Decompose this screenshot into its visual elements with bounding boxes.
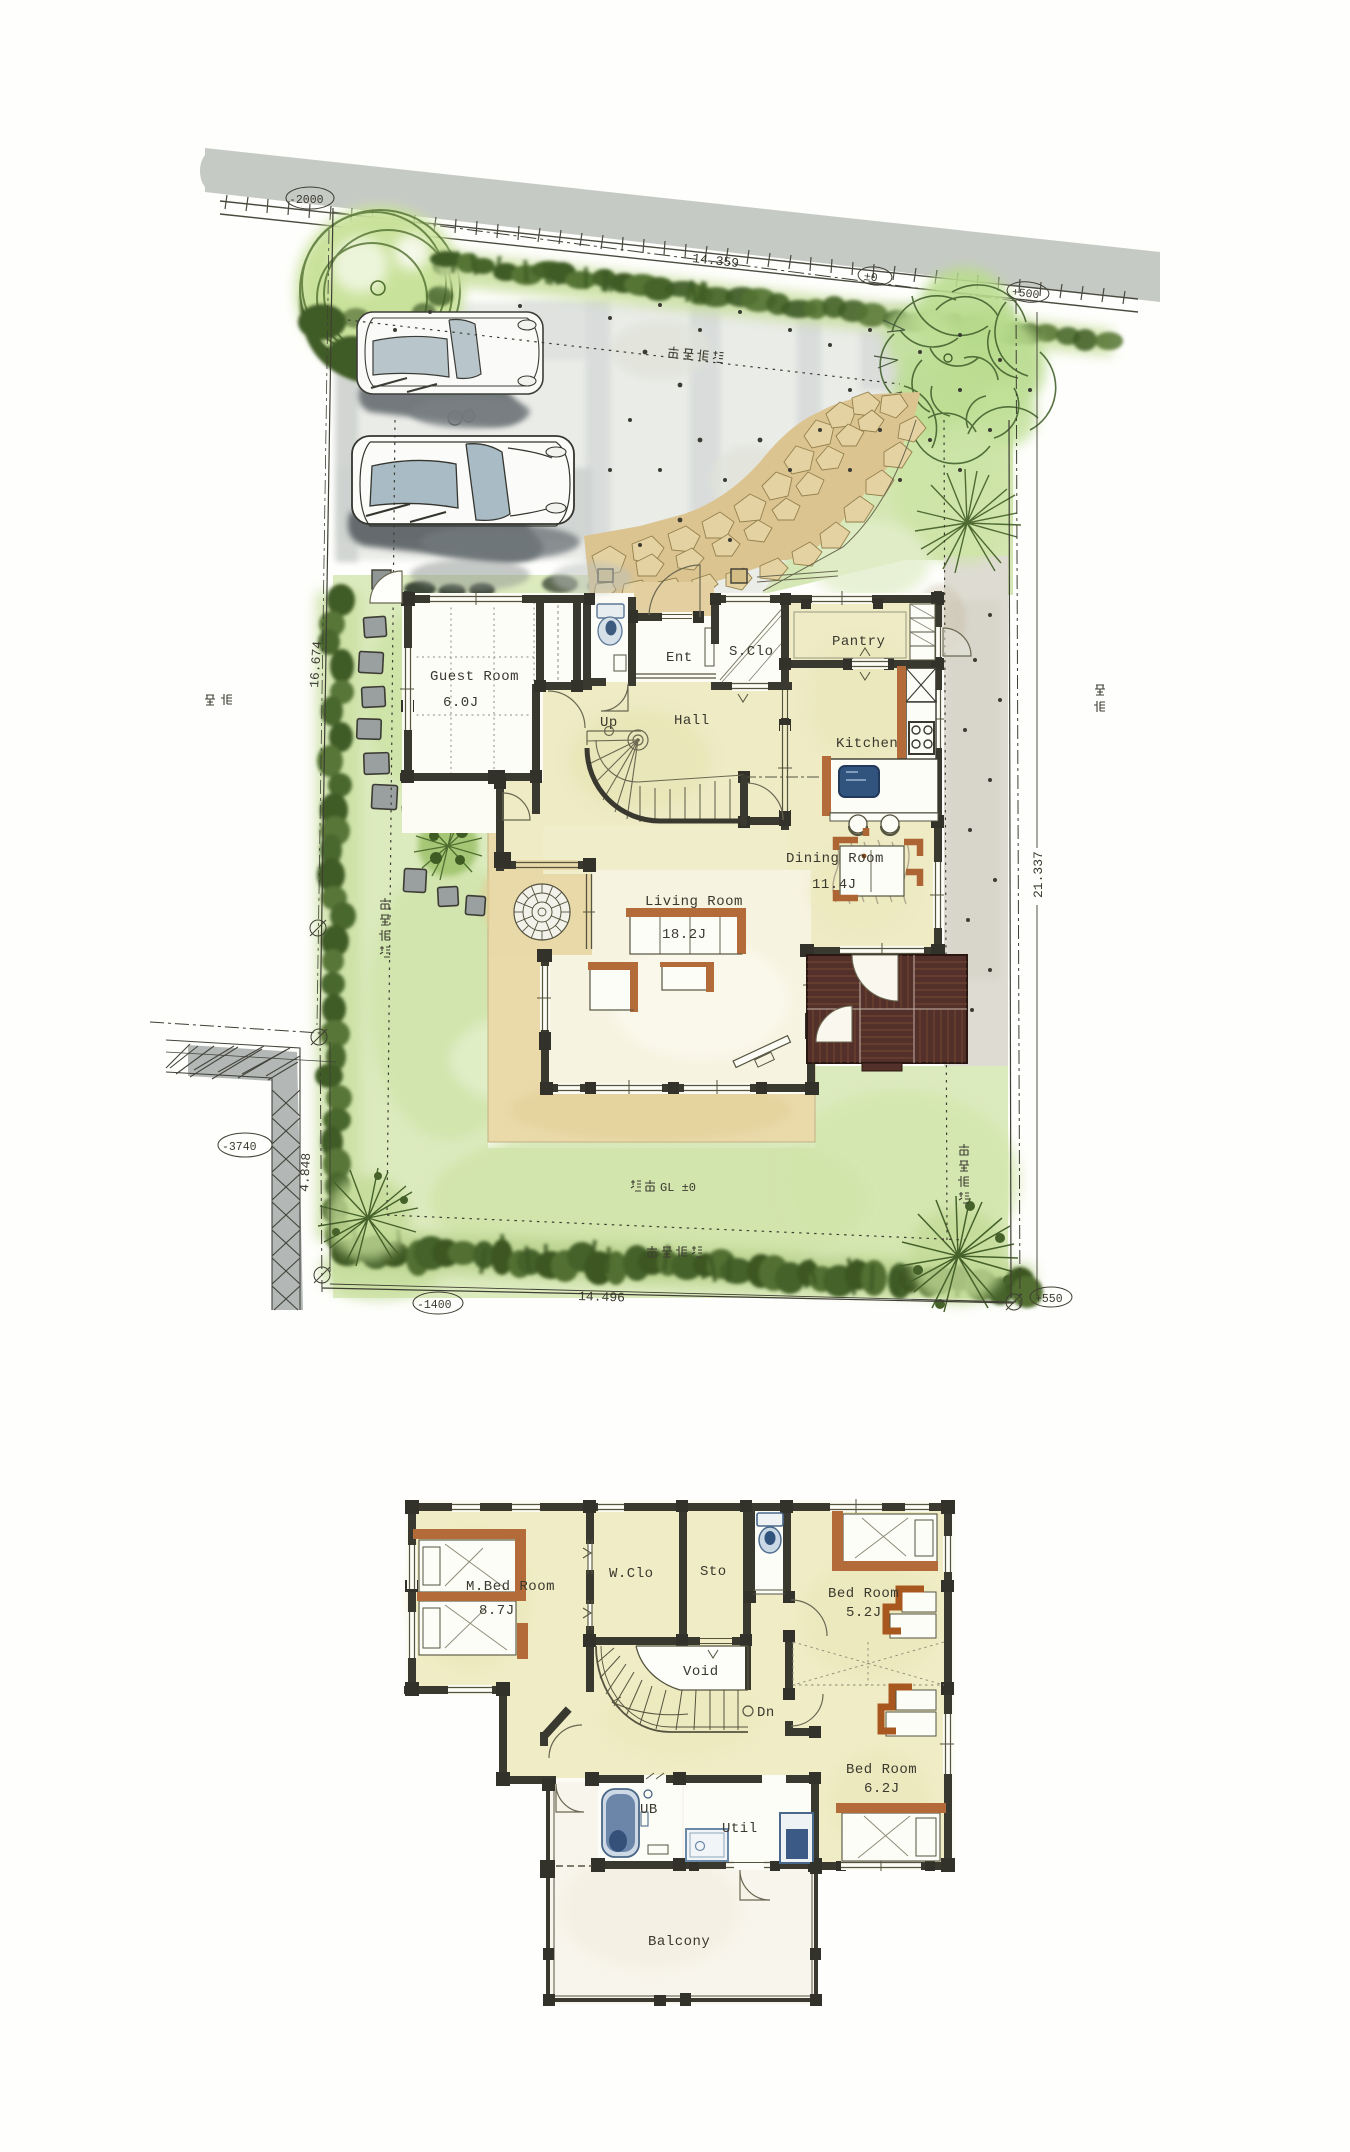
svg-text:Pantry: Pantry <box>832 634 885 650</box>
svg-text:Sto: Sto <box>700 1564 727 1580</box>
svg-text:14.496: 14.496 <box>578 1289 625 1305</box>
svg-text:Bed Room: Bed Room <box>846 1762 917 1778</box>
svg-text:GL ±0: GL ±0 <box>660 1181 696 1195</box>
svg-text:Ent: Ent <box>666 650 693 666</box>
svg-text:Dn: Dn <box>757 1705 775 1721</box>
svg-text:Util: Util <box>722 1821 758 1837</box>
svg-text:6.2J: 6.2J <box>864 1781 900 1797</box>
svg-text:-3740: -3740 <box>222 1141 257 1154</box>
svg-text:11.4J: 11.4J <box>812 877 857 893</box>
svg-text:6.0J: 6.0J <box>443 695 479 711</box>
svg-text:Bed Room: Bed Room <box>828 1586 899 1602</box>
svg-text:Up: Up <box>600 715 618 731</box>
svg-text:Guest Room: Guest Room <box>430 669 519 685</box>
svg-text:8.7J: 8.7J <box>479 1603 515 1619</box>
svg-text:Dining Room: Dining Room <box>786 851 884 867</box>
svg-text:14.359: 14.359 <box>692 251 740 271</box>
svg-text:4.848: 4.848 <box>297 1152 314 1192</box>
svg-text:5.2J: 5.2J <box>846 1605 882 1621</box>
svg-text:±0: ±0 <box>863 271 878 285</box>
svg-text:+550: +550 <box>1035 1293 1063 1306</box>
svg-text:Balcony: Balcony <box>648 1934 710 1950</box>
svg-text:Void: Void <box>683 1664 719 1680</box>
svg-text:S.Clo: S.Clo <box>729 644 774 660</box>
svg-text:18.2J: 18.2J <box>662 927 707 943</box>
svg-text:Hall: Hall <box>674 713 710 729</box>
svg-text:-1400: -1400 <box>417 1299 452 1312</box>
svg-text:21.337: 21.337 <box>1031 851 1046 898</box>
svg-text:Living Room: Living Room <box>645 894 743 910</box>
svg-text:UB: UB <box>640 1802 658 1818</box>
svg-text:M.Bed Room: M.Bed Room <box>466 1579 555 1595</box>
svg-text:+500: +500 <box>1011 286 1040 302</box>
svg-text:Kitchen: Kitchen <box>836 736 898 752</box>
svg-text:-2000: -2000 <box>289 194 324 207</box>
svg-text:W.Clo: W.Clo <box>609 1566 654 1582</box>
